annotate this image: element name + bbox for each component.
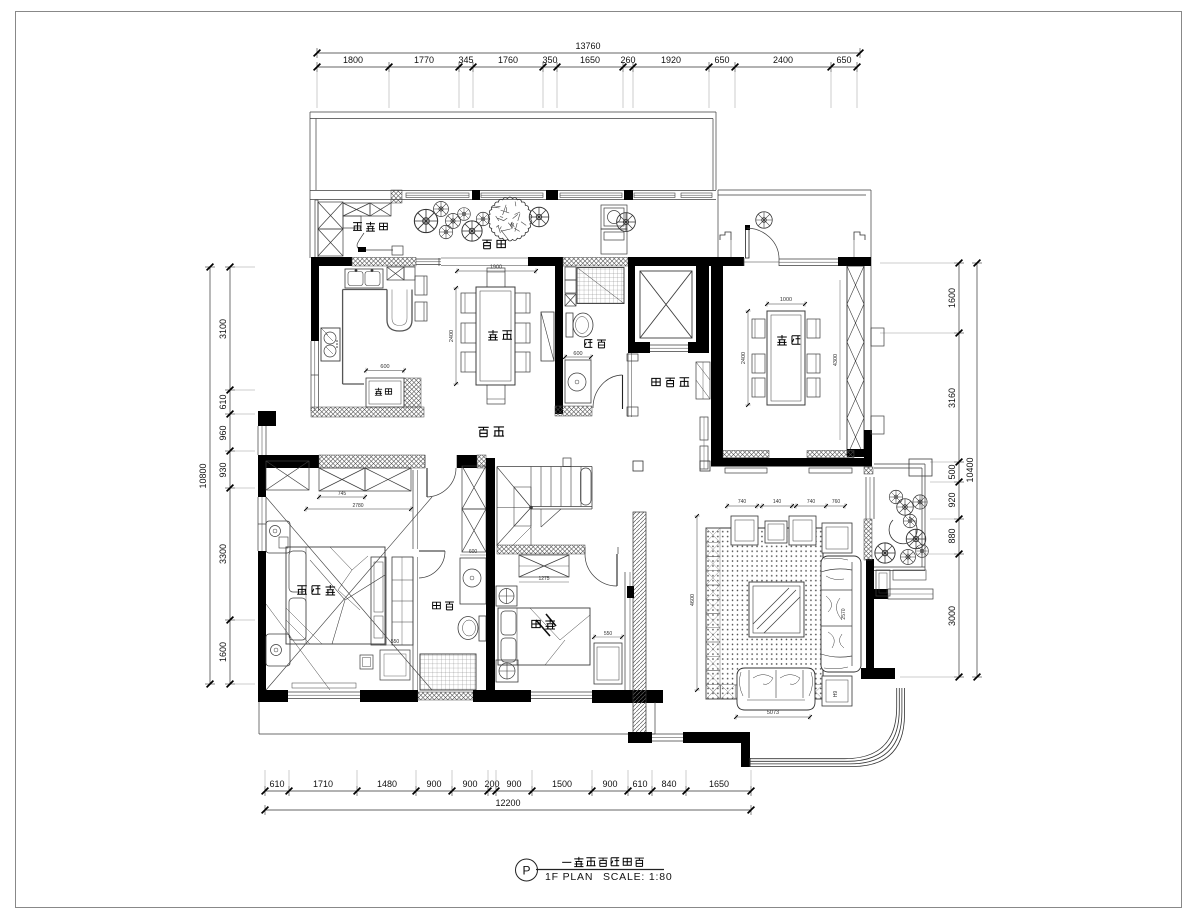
svg-text:260: 260 [620,55,635,65]
svg-text:2780: 2780 [352,503,363,509]
svg-text:SCALE: 1:80: SCALE: 1:80 [603,871,673,883]
svg-text:3160: 3160 [947,388,957,408]
svg-text:930: 930 [218,462,228,477]
svg-text:1920: 1920 [661,55,681,65]
svg-text:900: 900 [462,779,477,789]
svg-text:745: 745 [338,491,347,497]
svg-text:1275: 1275 [538,576,549,582]
svg-text:610: 610 [218,394,228,409]
svg-text:2400: 2400 [741,352,747,364]
svg-text:1900: 1900 [490,265,502,271]
svg-text:10800: 10800 [198,463,208,488]
svg-text:200: 200 [484,779,499,789]
svg-text:350: 350 [542,55,557,65]
svg-text:740: 740 [807,499,816,505]
svg-text:4600: 4600 [690,594,696,606]
svg-text:1480: 1480 [377,779,397,789]
svg-text:900: 900 [506,779,521,789]
svg-text:H9: H9 [833,691,839,698]
svg-text:650: 650 [836,55,851,65]
svg-text:13760: 13760 [575,41,600,51]
svg-text:3000: 3000 [947,606,957,626]
svg-text:P: P [522,864,530,878]
svg-text:1500: 1500 [552,779,572,789]
svg-text:600: 600 [469,549,478,555]
svg-text:1760: 1760 [498,55,518,65]
svg-text:610: 610 [269,779,284,789]
svg-text:920: 920 [947,492,957,507]
svg-text:550: 550 [604,631,613,637]
svg-text:140: 140 [773,499,782,505]
svg-text:760: 760 [832,499,841,505]
svg-text:1600: 1600 [947,288,957,308]
svg-text:600: 600 [380,364,389,370]
svg-text:12200: 12200 [495,798,520,808]
svg-text:2570: 2570 [841,608,847,619]
svg-text:900: 900 [426,779,441,789]
svg-text:1650: 1650 [580,55,600,65]
svg-text:4300: 4300 [833,354,839,366]
svg-text:550: 550 [391,639,400,645]
svg-text:2400: 2400 [773,55,793,65]
svg-text:600: 600 [573,351,582,357]
svg-text:2400: 2400 [449,330,455,342]
svg-text:880: 880 [947,528,957,543]
svg-text:3100: 3100 [218,319,228,339]
svg-text:1770: 1770 [414,55,434,65]
svg-text:960: 960 [218,425,228,440]
svg-text:1800: 1800 [343,55,363,65]
svg-text:840: 840 [661,779,676,789]
svg-text:5073: 5073 [767,710,779,716]
svg-text:1000: 1000 [780,297,792,303]
svg-text:610: 610 [632,779,647,789]
svg-text:1F PLAN: 1F PLAN [545,871,593,883]
svg-text:1710: 1710 [313,779,333,789]
svg-text:740: 740 [738,499,747,505]
svg-text:1650: 1650 [709,779,729,789]
svg-text:500: 500 [947,464,957,479]
svg-text:900: 900 [602,779,617,789]
svg-text:3300: 3300 [218,544,228,564]
svg-text:345: 345 [458,55,473,65]
svg-text:10400: 10400 [965,457,975,482]
svg-text:1600: 1600 [218,642,228,662]
svg-text:650: 650 [714,55,729,65]
